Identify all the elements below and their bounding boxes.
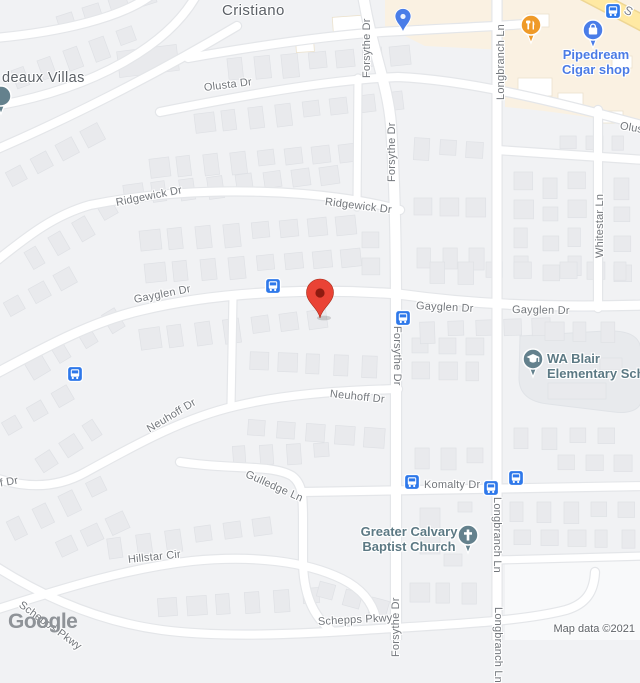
google-logo[interactable]: Google (8, 610, 77, 634)
street-label-forsythe-dr-lower: Forsythe Dr (391, 326, 403, 386)
street-label-longbranch-ln-mid: Longbranch Ln (491, 497, 503, 573)
poi-label-church-line1[interactable]: Greater Calvary (361, 524, 458, 539)
map-labels: Cristiano deaux Villas Olusta Dr Olusta … (0, 0, 640, 640)
map-attribution: Map data ©2021 (554, 623, 636, 635)
street-label-gayglen-dr-right: Gayglen Dr (512, 304, 570, 317)
street-label-gulledge-ln: Gulledge Ln (244, 469, 305, 505)
street-label-neuhoff-dr-right: Neuhoff Dr (329, 388, 385, 406)
poi-label-pipedream-line2[interactable]: Cigar shop (562, 62, 630, 77)
poi-label-pipedream[interactable]: Pipedream Cigar shop (562, 47, 630, 77)
street-label-neuhoff-dr-partial: Neuhoff Dr (0, 475, 19, 496)
poi-label-wa-blair-line2[interactable]: Elementary Sch (547, 366, 640, 381)
street-label-gayglen-dr-mid: Gayglen Dr (416, 300, 474, 315)
poi-label-pipedream-line1[interactable]: Pipedream (562, 47, 630, 62)
street-label-schepps-pkwy: Schepps Pkwy (318, 612, 393, 628)
street-label-ridgewick-dr-left: Ridgewick Dr (115, 184, 183, 209)
street-label-komalty-dr: Komalty Dr (424, 479, 480, 491)
street-label-gayglen-dr-left: Gayglen Dr (133, 283, 192, 306)
street-label-forsythe-dr-top: Forsythe Dr (361, 18, 373, 78)
street-label-forsythe-dr-bottom: Forsythe Dr (390, 597, 402, 657)
street-label-longbranch-ln-top: Longbranch Ln (495, 24, 507, 100)
poi-label-church-line2[interactable]: Baptist Church (361, 539, 458, 554)
street-label-ridgewick-dr-right: Ridgewick Dr (324, 196, 392, 216)
street-label-hillstar-cir: Hillstar Cir (127, 548, 181, 565)
street-label-olusta-dr: Olusta Dr (203, 76, 252, 94)
street-label-forsythe-dr-mid: Forsythe Dr (386, 122, 398, 182)
poi-label-wa-blair-line1[interactable]: WA Blair (547, 351, 640, 366)
street-label-whitestar-ln: Whitestar Ln (594, 194, 606, 258)
poi-label-church[interactable]: Greater Calvary Baptist Church (361, 524, 458, 554)
street-label-olusta-dr-right: Olusta Dr (619, 120, 640, 140)
street-label-neuhoff-dr-left: Neuhoff Dr (145, 397, 198, 436)
map-canvas: Cristiano deaux Villas Olusta Dr Olusta … (0, 0, 640, 640)
area-label-cristiano: Cristiano (222, 2, 285, 19)
street-label-highway-s: S (622, 3, 636, 19)
poi-label-wa-blair[interactable]: WA Blair Elementary Sch (547, 351, 640, 381)
street-label-longbranch-ln-bottom: Longbranch Ln (492, 607, 504, 683)
area-label-deaux-villas: deaux Villas (2, 70, 85, 86)
